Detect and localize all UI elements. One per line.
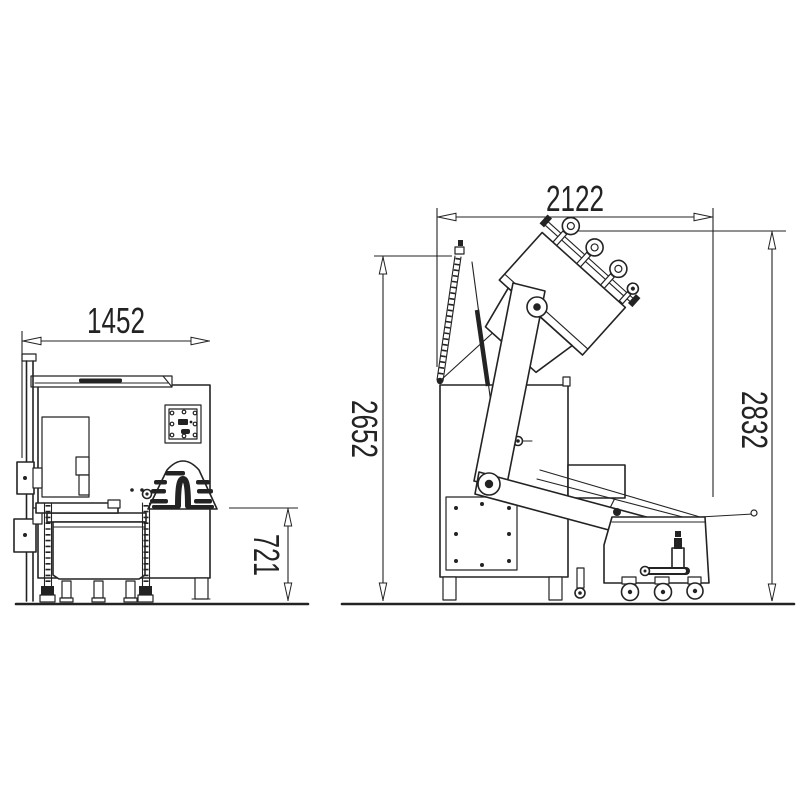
jack-knob (675, 531, 681, 537)
lift-arm (474, 283, 757, 544)
loading-height-dim-label: 721 (246, 534, 287, 576)
caster-hub (628, 590, 632, 594)
bin-trolley-front (47, 511, 146, 602)
panel-switch (181, 429, 190, 434)
electrical-panel (165, 405, 201, 443)
trolley-leg (126, 581, 135, 598)
bolt-icon (170, 411, 174, 415)
arrowhead-down-icon (768, 584, 775, 601)
rail-end-roller (751, 510, 757, 516)
trolley-leg (62, 581, 71, 598)
rod-foot (41, 586, 54, 595)
machine-leg (195, 578, 208, 599)
control-strip (188, 505, 214, 509)
bolt-icon (170, 433, 174, 437)
panel-dot (130, 488, 134, 492)
rod-foot (139, 586, 152, 595)
side-view: 2122 2652 2832 (342, 178, 794, 604)
bolt-icon (480, 563, 484, 567)
rail-top-knob (458, 240, 463, 246)
panel-dot (190, 421, 193, 424)
machine-leg (549, 577, 562, 600)
depth-dim-label: 2122 (546, 178, 604, 219)
trolley-body (53, 522, 145, 579)
arrowhead-left-icon (23, 337, 41, 345)
bolt-icon (480, 502, 484, 506)
bolt-icon (507, 506, 511, 510)
pivot-dot (23, 476, 27, 480)
dimension-column-height: 2652 (344, 256, 452, 601)
pivot-pin-dot (516, 439, 520, 443)
bolt-icon (507, 559, 511, 563)
rim-knob (613, 508, 621, 516)
bolt-icon (193, 411, 197, 415)
door-hinge-upper (76, 457, 89, 475)
cylinder-sleeve (477, 310, 488, 386)
top-lid (31, 376, 172, 387)
side-knob-dot (145, 492, 148, 495)
trolley-foot-stem (577, 568, 584, 588)
trolley-foot (92, 598, 105, 602)
technical-drawing-page: 1452 721 (0, 0, 800, 800)
tipping-height-dim-label: 2832 (734, 391, 775, 449)
arrowhead-up-icon (768, 232, 775, 249)
control-button (154, 480, 167, 485)
dimension-loading-height: 721 (229, 508, 298, 601)
bolt-icon (454, 532, 458, 536)
trolley-leg (94, 581, 103, 598)
arrowhead-up-icon (284, 509, 291, 526)
arrowhead-right-icon (694, 213, 712, 221)
panel-dot (140, 488, 144, 492)
side-door (42, 417, 89, 497)
column-slide (33, 468, 42, 488)
bolt-icon (454, 506, 458, 510)
control-button (194, 499, 212, 504)
technical-drawing: 1452 721 (0, 0, 800, 800)
arm-top-pivot-dot (533, 303, 541, 311)
control-strip (152, 505, 178, 509)
trolley-rim (47, 513, 146, 522)
bolt-icon (170, 422, 174, 426)
bolt-icon (182, 434, 186, 438)
access-panel (446, 497, 517, 570)
pivot-dot (23, 533, 27, 537)
arrowhead-down-icon (379, 583, 386, 600)
front-width-dim-label: 1452 (87, 300, 145, 341)
control-button (165, 471, 185, 476)
caster-hub (661, 590, 665, 594)
guide-rail-hatch (440, 258, 458, 379)
fork-arm-end (108, 500, 120, 508)
front-view: 1452 721 (14, 300, 308, 604)
arrowhead-right-icon (191, 337, 209, 345)
bolt-icon (507, 532, 511, 536)
tipper-rail-extension (700, 514, 753, 517)
arrowhead-up-icon (379, 257, 386, 274)
trolley-foot (60, 598, 73, 602)
panel-display (178, 419, 188, 425)
caster-hub (693, 589, 697, 593)
control-button (196, 480, 210, 485)
trolley-foot (124, 598, 137, 602)
column-height-dim-label: 2652 (344, 400, 385, 458)
jack-cap (674, 538, 682, 549)
rod-base (138, 595, 153, 602)
handle-end-dot (644, 570, 647, 573)
bolt-icon (454, 559, 458, 563)
rod-base (40, 595, 55, 602)
bolt-icon (193, 422, 197, 426)
door-hinge-lower (79, 475, 89, 495)
control-button (151, 489, 166, 494)
floor-trolley (575, 517, 709, 601)
control-button (150, 499, 168, 504)
arrowhead-down-icon (284, 583, 291, 600)
bolt-icon (193, 433, 197, 437)
control-button (197, 489, 213, 494)
elbow-joint-dot (485, 480, 493, 488)
column-cap (22, 354, 36, 361)
outlet-box (568, 465, 625, 498)
machine-leg (443, 577, 456, 600)
rail-top-fitting (455, 247, 464, 254)
caster-hub (578, 591, 582, 595)
cabinet-top-step (563, 377, 570, 386)
arrowhead-left-icon (438, 213, 456, 221)
lid-handle (79, 379, 122, 383)
bolt-icon (182, 410, 186, 414)
